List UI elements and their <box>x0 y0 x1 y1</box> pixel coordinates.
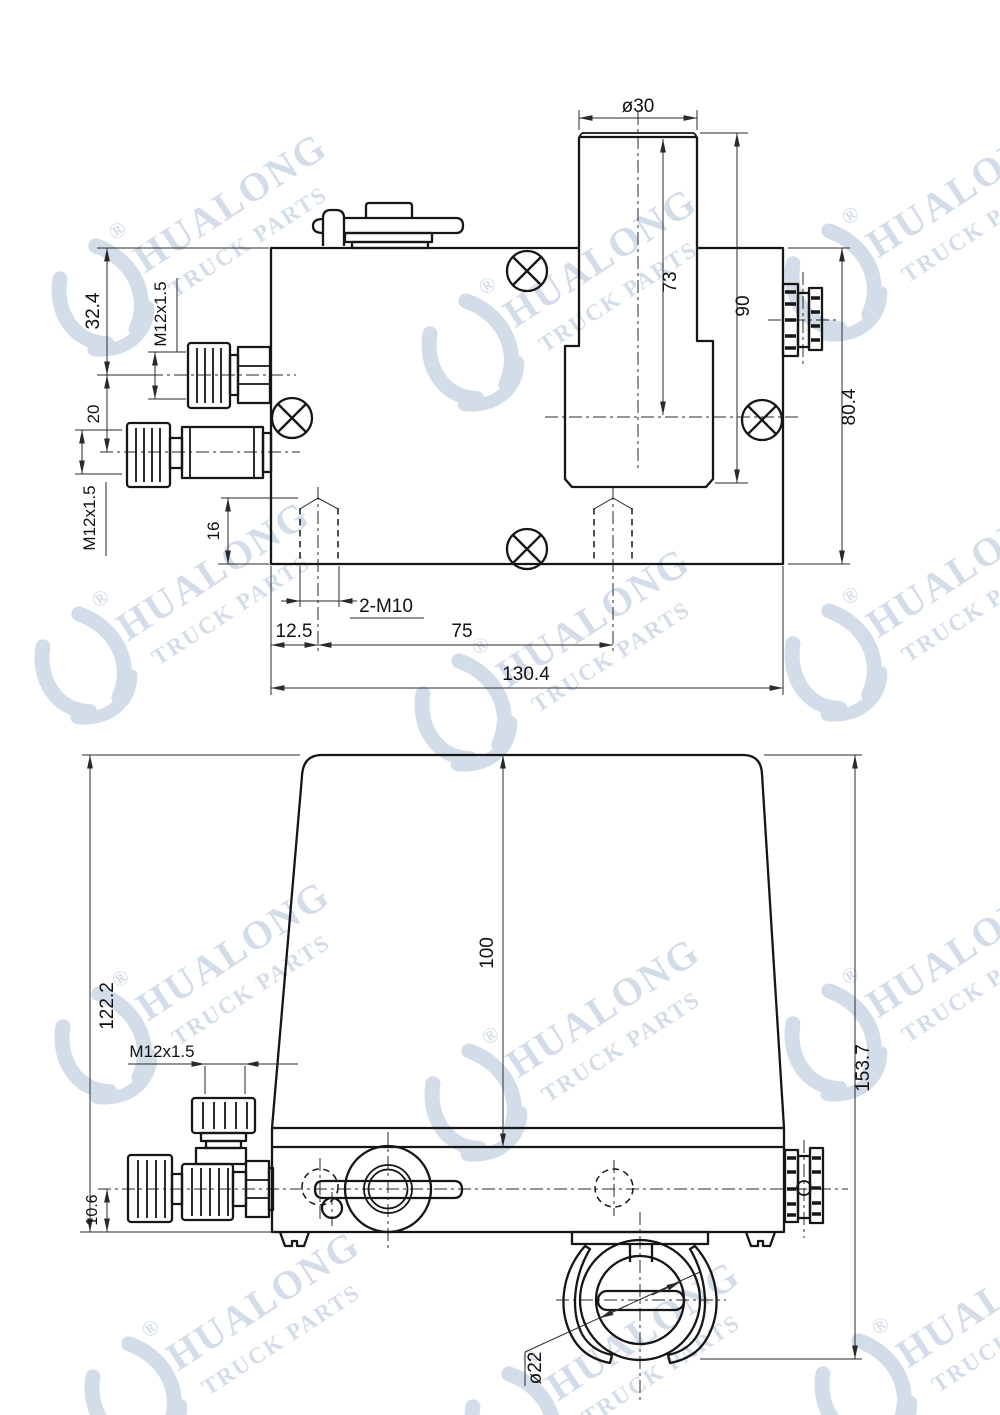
cad-drawing: ® HUALONG TRUCK PARTS <box>0 0 1000 1415</box>
dim-dia-30: ø30 <box>622 96 655 117</box>
dim-80-4: 80.4 <box>839 388 860 425</box>
holes-label-2-m10: 2-M10 <box>359 596 413 617</box>
dim-122-2: 122.2 <box>97 982 118 1030</box>
dim-153-7: 153.7 <box>853 1044 874 1092</box>
dim-16: 16 <box>204 522 223 541</box>
thread-label-upper: M12x1.5 <box>151 281 170 346</box>
thread-label-front: M12x1.5 <box>129 1042 194 1061</box>
dim-32-4: 32.4 <box>83 292 104 329</box>
dim-90: 90 <box>733 295 754 316</box>
dim-12-5: 12.5 <box>276 621 313 642</box>
dim-130-4: 130.4 <box>502 664 550 685</box>
dim-73: 73 <box>660 271 681 292</box>
dim-100: 100 <box>477 937 498 969</box>
dim-10-6: 10.6 <box>84 1194 101 1225</box>
thread-label-lower: M12x1.5 <box>80 485 99 550</box>
dim-75: 75 <box>451 621 472 642</box>
dim-20: 20 <box>84 405 103 424</box>
dim-dia-22: ø22 <box>525 1352 546 1385</box>
drawing-sheet: ® HUALONG TRUCK PARTS <box>0 0 1000 1415</box>
